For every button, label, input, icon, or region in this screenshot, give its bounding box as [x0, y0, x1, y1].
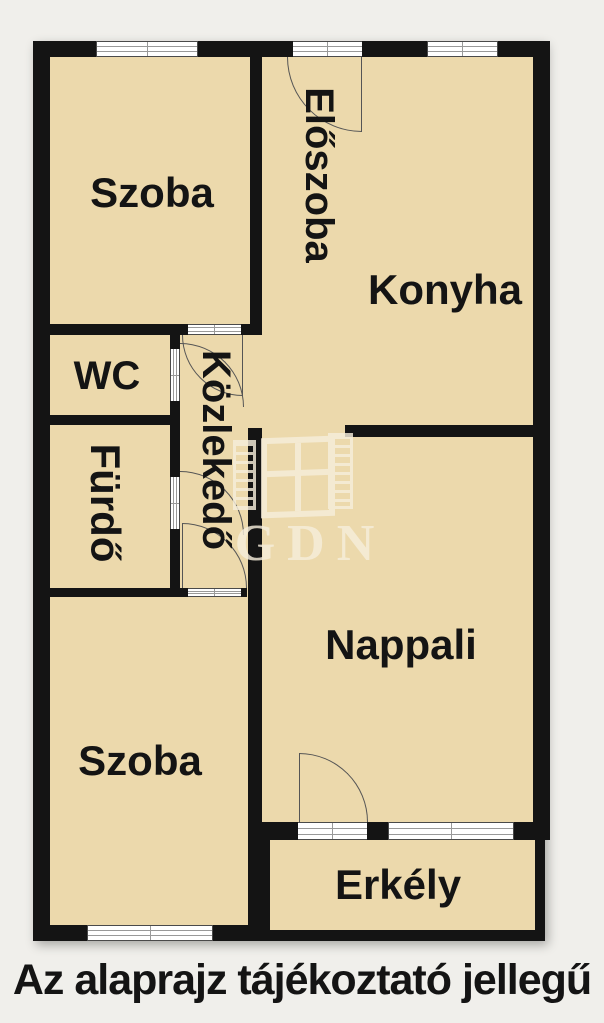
room-label-erkely: Erkély — [335, 864, 461, 906]
room-label-eloszoba: Előszoba — [299, 87, 339, 263]
gdn-watermark: GDN — [213, 424, 408, 574]
room-label-szoba-2: Szoba — [78, 740, 202, 782]
door-szoba1 — [182, 324, 247, 335]
door-entrance — [287, 41, 368, 57]
door-leaf-balcony — [299, 753, 300, 822]
door-furdo — [170, 471, 180, 535]
wall-balcony-right — [535, 840, 545, 935]
wall-furdo-szoba2 — [50, 588, 182, 597]
watermark-text: GDN — [213, 518, 408, 570]
room-label-kozlekedo: Közlekedő — [196, 350, 236, 550]
door-wc — [170, 343, 180, 407]
wall-exterior-right — [533, 41, 550, 840]
room-label-furdo: Fürdő — [84, 444, 126, 563]
door-balcony — [292, 822, 373, 840]
wall-exterior-left — [33, 41, 50, 941]
wall-balcony-bottom — [262, 930, 545, 941]
wall-wc-furdo — [50, 415, 180, 425]
door-leaf-szoba2 — [182, 523, 183, 588]
wall-szoba1-bottom-stub — [245, 324, 262, 335]
wall-szoba1-eloszoba — [250, 57, 262, 335]
room-label-nappali: Nappali — [325, 624, 477, 666]
wall-szoba1-bottom — [50, 324, 182, 335]
window-nappali — [388, 822, 514, 840]
room-label-konyha: Konyha — [368, 269, 522, 311]
door-leaf-entrance — [361, 57, 362, 132]
window-konyha — [427, 41, 498, 57]
door-leaf-szoba1 — [242, 335, 243, 396]
room-label-wc: WC — [74, 356, 141, 396]
window-szoba2 — [87, 925, 213, 941]
shutter-right-icon — [328, 433, 353, 509]
room-label-szoba-1: Szoba — [90, 172, 214, 214]
door-szoba2 — [182, 588, 247, 597]
window-szoba1 — [96, 41, 198, 57]
floorplan-image: GDN Szoba Előszoba Konyha WC Fürdő Közle… — [0, 0, 604, 1023]
disclaimer-caption: Az alaprajz tájékoztató jellegű — [0, 956, 604, 1005]
window-icon — [261, 436, 335, 519]
